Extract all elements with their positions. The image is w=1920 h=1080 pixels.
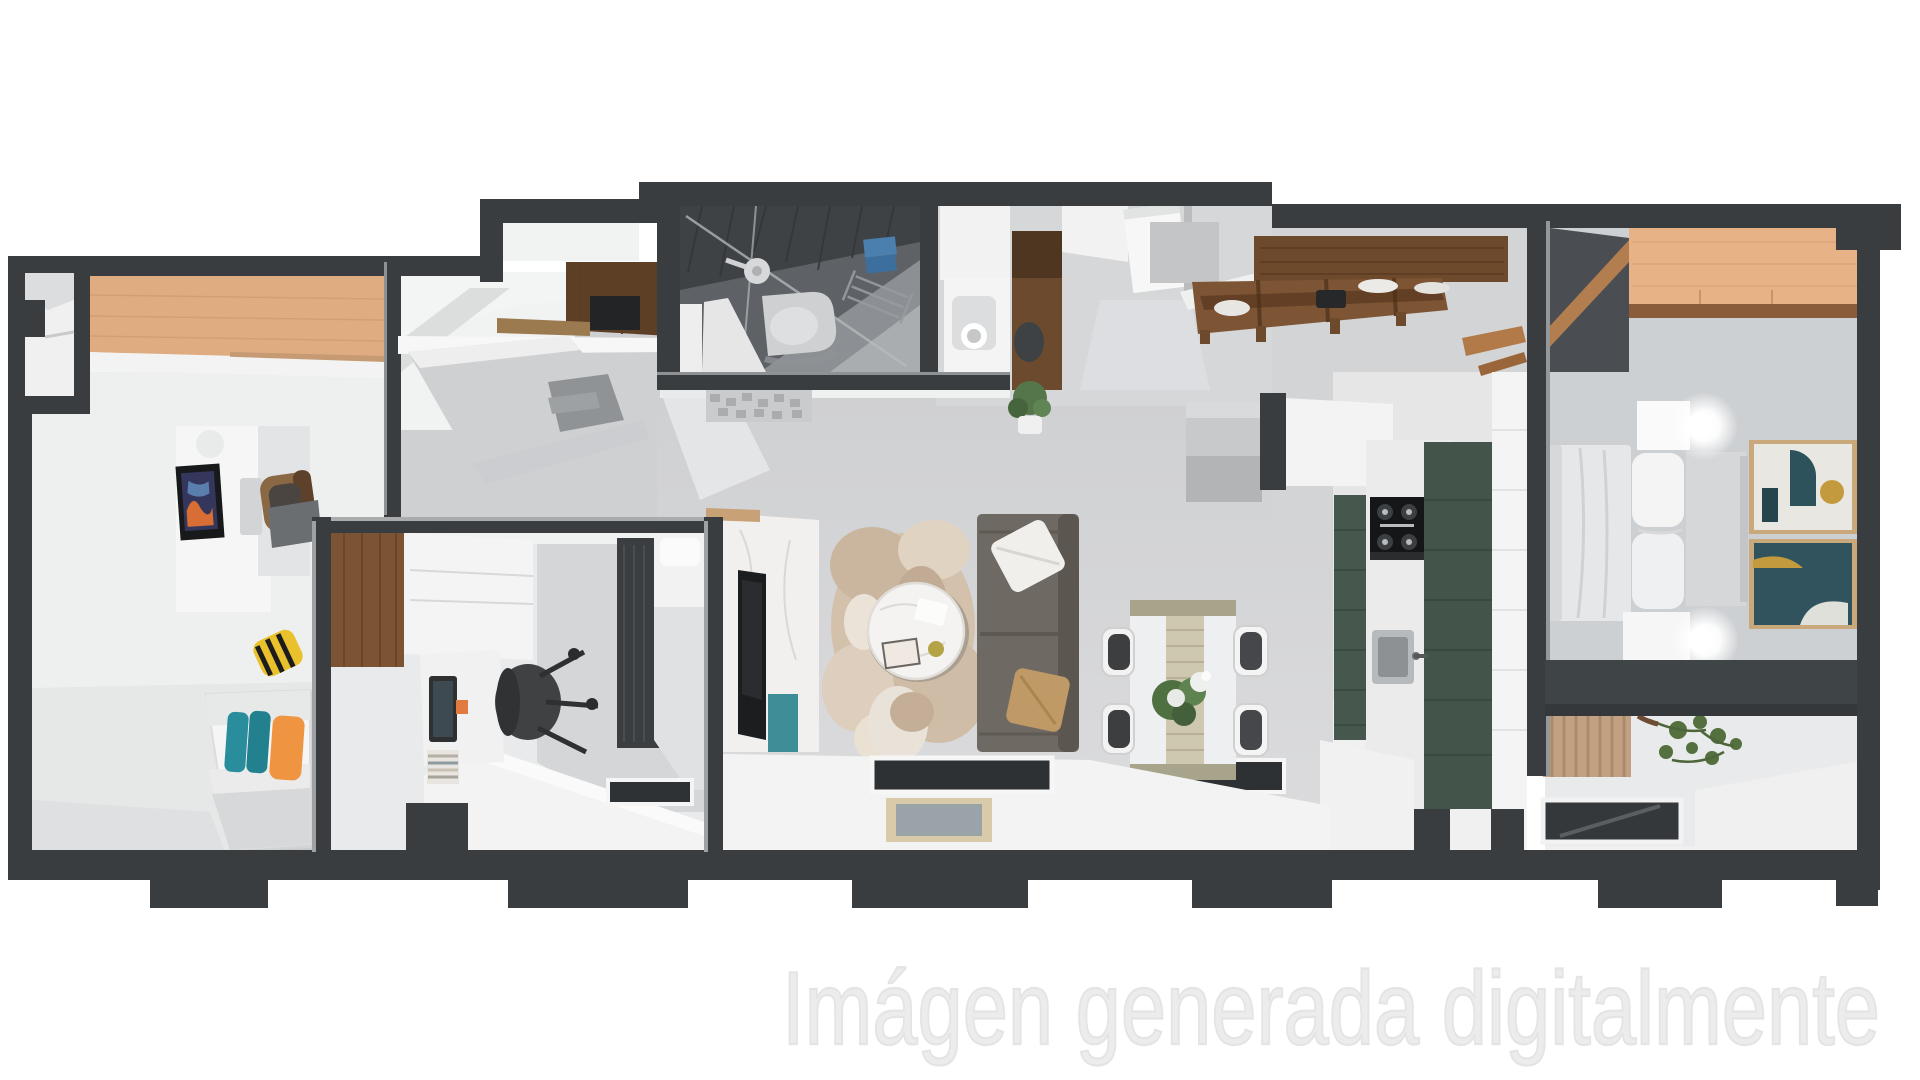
svg-text:Imágen generada digitalmente: Imágen generada digitalmente	[782, 951, 1880, 1067]
